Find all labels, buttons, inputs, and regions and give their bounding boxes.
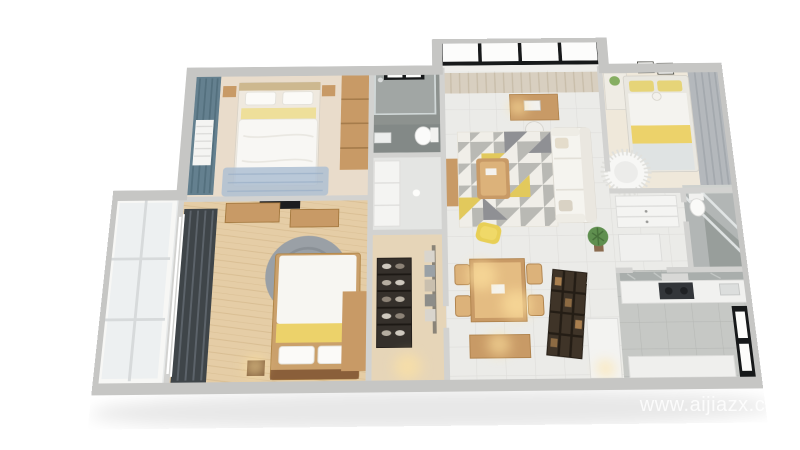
hanging-clothes [425, 279, 436, 291]
yellow-blanket [241, 108, 316, 120]
hanging-cabinet [225, 203, 280, 223]
armrest [556, 214, 586, 223]
sideboard [445, 159, 459, 207]
floorplan-render: www.aijiazx.com [0, 0, 800, 450]
centerpiece [491, 284, 505, 293]
dining-chair [526, 264, 542, 284]
white-cabinet [374, 161, 400, 226]
hanging-clothes [425, 309, 436, 321]
yellow-blanket [631, 125, 692, 144]
toilet [415, 127, 431, 145]
hanging-clothes [424, 251, 434, 263]
dining-chair [455, 296, 471, 317]
sink [719, 284, 739, 295]
sofa [550, 128, 596, 223]
magazine [485, 168, 496, 175]
bathroom-1 [371, 65, 443, 155]
yellow-pillow [657, 80, 683, 91]
plan-canvas [88, 37, 768, 430]
shelf-divider [547, 269, 587, 358]
stove [658, 282, 694, 299]
wall-laundry-cloak [370, 229, 445, 235]
hanging-clothes [424, 265, 435, 277]
wall-bath-laundry [371, 152, 444, 158]
throw-pillow [558, 200, 573, 211]
sink-vanity [375, 133, 391, 143]
hanging-clothes [425, 294, 436, 306]
nightstand [223, 86, 237, 97]
lower-counter [628, 355, 736, 378]
wall-cloak-dining [443, 328, 450, 386]
lower-cabinet [618, 234, 662, 261]
nightstand [322, 85, 336, 96]
toilet-tank [430, 127, 438, 142]
pillow [282, 92, 313, 105]
armrest [550, 128, 579, 136]
teddy-bear [652, 92, 662, 100]
side-cabinet [341, 291, 367, 371]
wall-kitchen-top-a [615, 267, 632, 273]
apartment-3d-plan [88, 37, 768, 430]
wall-kitchen-top-b [666, 266, 748, 272]
pillow [245, 92, 276, 105]
coffee-table [476, 158, 510, 199]
yellow-pillow [629, 81, 655, 92]
headboard [239, 82, 321, 91]
watermark: www.aijiazx.com [640, 394, 794, 417]
throw-pillow [555, 138, 569, 149]
pillow [279, 346, 315, 364]
hanging-cabinet [290, 209, 339, 227]
range-hood [661, 273, 688, 281]
